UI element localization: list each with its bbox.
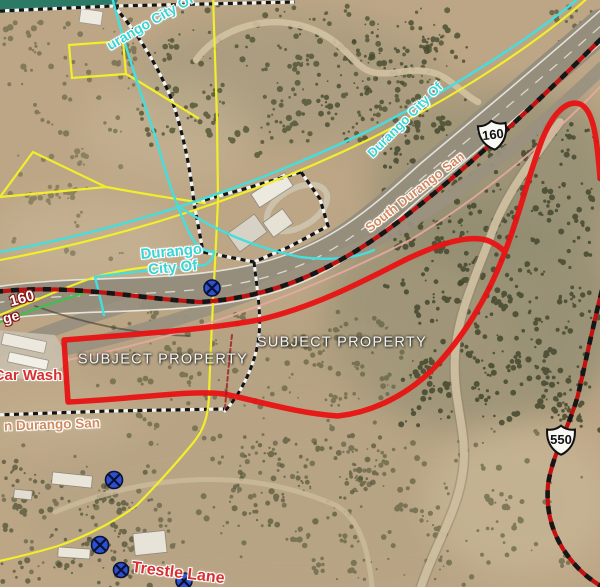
utility-marker-icon [92,537,109,554]
us-550-shield: 550 [544,424,578,456]
utility-marker-icon [114,563,129,578]
utility-marker-icon [176,573,192,587]
house-roof [133,530,167,555]
building-top-left [79,9,103,26]
us-550-shield-number: 550 [544,432,578,447]
map-canvas[interactable]: urango City Of Durango City Of Durango C… [0,0,600,587]
house-roof [14,489,33,500]
us-160-shield: 160 [474,117,512,153]
house-roof [58,547,91,559]
utility-marker-icon [106,472,123,489]
aerial-map [0,0,600,587]
utility-marker-icon [204,280,220,296]
